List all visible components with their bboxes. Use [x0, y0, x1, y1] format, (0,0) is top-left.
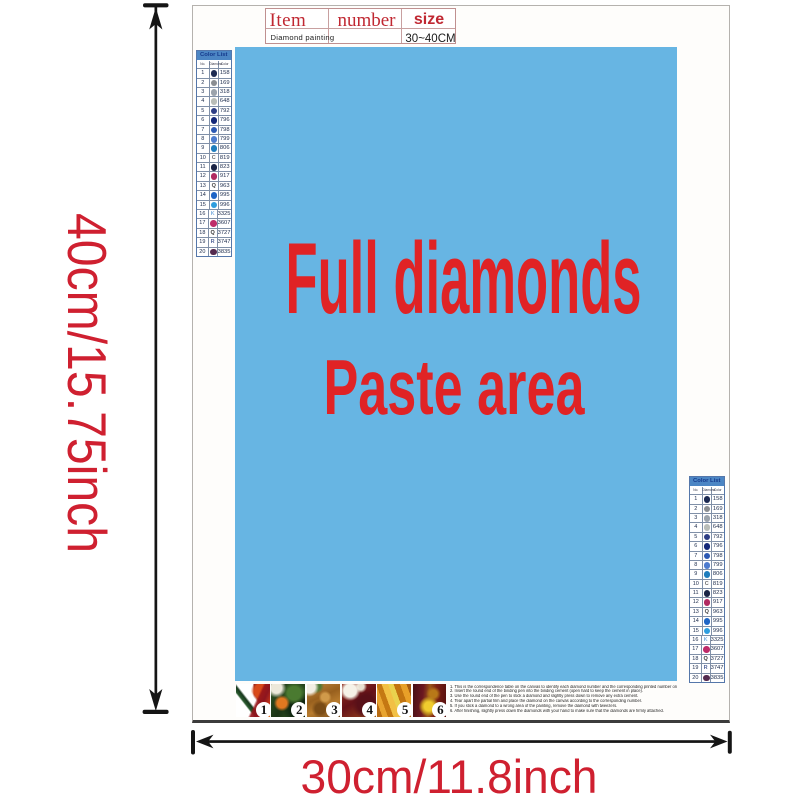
svg-text:40cm/15.75inch: 40cm/15.75inch [56, 213, 118, 553]
svg-text:Full diamonds: Full diamonds [286, 223, 642, 335]
svg-text:Paste area: Paste area [324, 343, 585, 431]
svg-text:30cm/11.8inch: 30cm/11.8inch [301, 750, 598, 800]
